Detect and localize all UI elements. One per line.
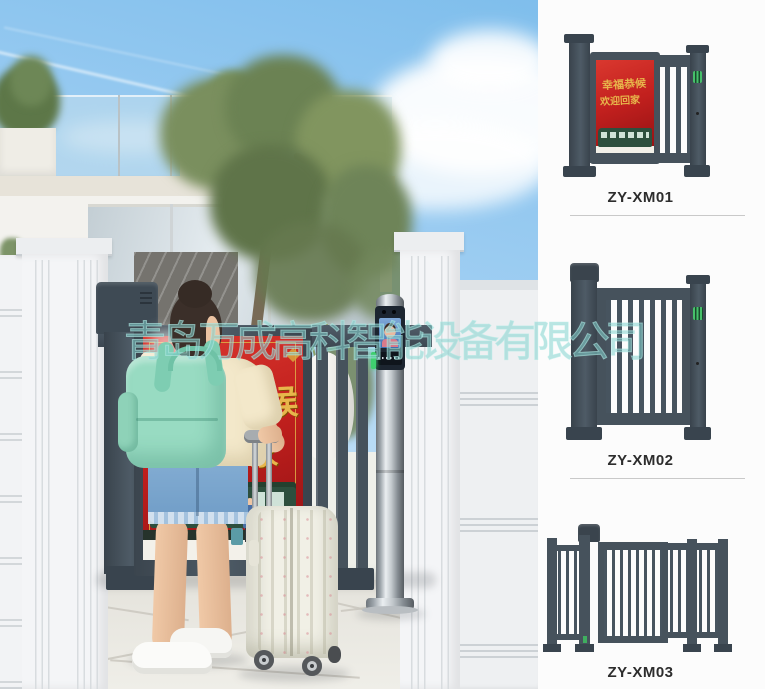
gate-pillar <box>690 284 706 430</box>
suitcase-rod <box>266 440 272 514</box>
panel-grooves <box>452 392 538 406</box>
post-seam <box>376 470 404 473</box>
product-card-zy-xm01[interactable]: 幸福恭候 欢迎回家 ZY-XM01 <box>538 0 743 216</box>
lock-dot <box>696 112 699 115</box>
suitcase-rod <box>252 440 258 514</box>
fence-post <box>718 539 728 646</box>
fence-post <box>579 535 590 646</box>
right-pillar-cap <box>394 232 464 252</box>
planter-box <box>0 128 56 178</box>
pillar-cap <box>564 34 594 43</box>
access-post-body <box>376 368 404 604</box>
post-base-disc <box>362 606 418 614</box>
fence-post <box>687 539 697 646</box>
pillar-cap <box>686 45 709 53</box>
pillar-base <box>684 427 711 440</box>
suitcase-wheel-rear <box>328 646 341 663</box>
fence-bars <box>558 551 580 636</box>
pillar-cap <box>686 275 710 284</box>
gate-pillar <box>690 53 706 166</box>
product-showcase: 幸福恭候 欢迎回家 <box>0 0 765 689</box>
product-figure-zy-xm03 <box>538 488 743 658</box>
fence-top-rail <box>668 543 728 550</box>
suitcase-zipper <box>290 508 293 656</box>
suitcase-wheel[interactable] <box>254 650 274 670</box>
pillar-base <box>563 166 596 177</box>
mini-poster-line2: 欢迎回家 <box>600 91 641 108</box>
gate-top-rail <box>597 288 691 300</box>
green-indicator <box>583 636 587 643</box>
mini-train-windows <box>601 132 649 138</box>
gate-bottom-rail <box>590 153 692 163</box>
product-figure-zy-xm01: 幸福恭候 欢迎回家 <box>538 0 743 186</box>
motor-vents <box>140 292 152 306</box>
keypad-reader[interactable] <box>693 71 702 83</box>
shrub <box>10 56 52 106</box>
divider <box>570 215 745 216</box>
suitcase-wheel[interactable] <box>302 656 322 676</box>
fence-bottom-rail <box>557 634 581 640</box>
post-foot <box>543 644 561 652</box>
poster-mini-suitcase <box>231 528 243 545</box>
tree-foliage <box>255 222 367 322</box>
fence-bars <box>670 550 687 634</box>
post-foot <box>683 644 701 652</box>
gate-top-rail <box>660 55 692 67</box>
pillar-flutes <box>72 260 98 689</box>
product-label-zy-xm02: ZY-XM02 <box>538 452 743 469</box>
product-card-zy-xm03[interactable]: ZY-XM03 <box>538 488 743 689</box>
lock-dot <box>696 362 699 365</box>
pillar-flutes <box>30 260 54 689</box>
pillar-base <box>684 165 710 177</box>
panel-grooves <box>452 644 538 658</box>
post-foot <box>575 644 594 652</box>
panel-grooves <box>452 518 538 532</box>
keypad-reader[interactable] <box>693 307 703 320</box>
gate-bar <box>356 340 368 572</box>
pillar-base <box>566 427 602 440</box>
product-label-zy-xm01: ZY-XM01 <box>538 189 743 206</box>
backpack-seam <box>136 418 218 421</box>
suitcase-shadow <box>238 666 350 682</box>
gate-pillar <box>569 43 590 169</box>
backpack-pocket <box>118 392 138 452</box>
divider <box>570 478 745 479</box>
cloud <box>430 30 538 90</box>
post-foot <box>714 644 732 652</box>
fence-bars <box>699 550 718 634</box>
woman-left-shoe <box>132 642 212 674</box>
woman-hair-bun <box>178 280 212 308</box>
gate-frame-top <box>598 542 668 550</box>
company-watermark: 青岛万成高科智能设备有限公司 <box>124 308 642 369</box>
gate-bottom-rail <box>598 636 668 643</box>
product-label-zy-xm03: ZY-XM03 <box>538 664 743 681</box>
gate-right-stile <box>662 542 668 642</box>
gate-bars <box>604 550 662 636</box>
railing-post <box>118 95 120 177</box>
gate-bars <box>665 67 690 153</box>
fence-bottom-rail <box>668 632 728 638</box>
panel-bevel <box>450 280 538 290</box>
mini-poster-line1: 幸福恭候 <box>602 75 647 93</box>
gate-bottom-rail <box>597 413 691 425</box>
suitcase-side-handle <box>249 540 259 566</box>
fence-post <box>547 538 557 646</box>
